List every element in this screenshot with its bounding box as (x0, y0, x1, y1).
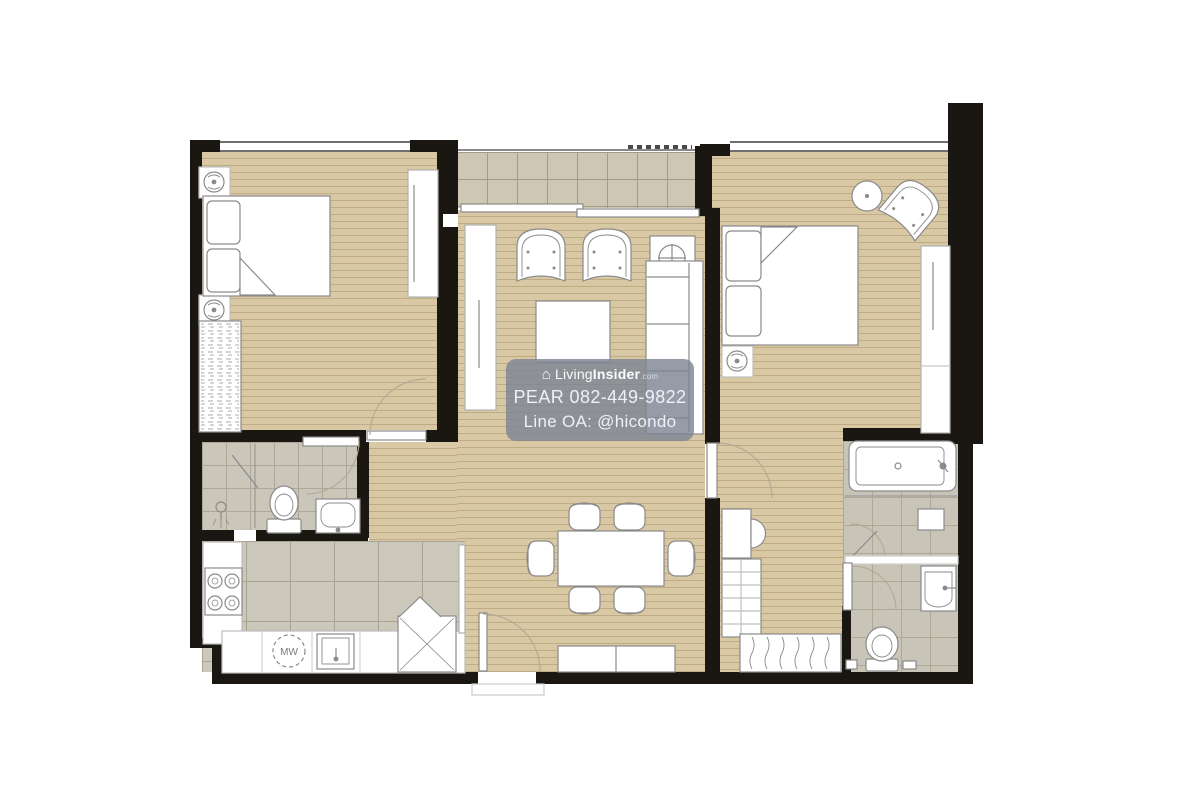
door-master-bedroom (707, 443, 772, 498)
door-entrance (479, 613, 540, 671)
brand-tld: .com (640, 372, 658, 381)
wardrobe (408, 170, 438, 297)
door-bathroom2 (303, 437, 359, 494)
kitchen-sink (317, 634, 354, 669)
console-cabinet (558, 646, 675, 672)
coffee-table (536, 301, 610, 362)
watermark-badge: ⌂LivingInsider.com PEAR 082-449-9822 Lin… (506, 359, 694, 441)
dining-chair (569, 587, 600, 614)
dining-chair (614, 587, 645, 614)
floor-plan: MW (0, 0, 1200, 803)
ceiling-light-icon (199, 167, 230, 198)
dining-chair (614, 503, 645, 530)
armchair (517, 229, 565, 281)
stool (852, 181, 882, 211)
dressing-table (722, 509, 766, 558)
dining-chair (527, 541, 554, 576)
refrigerator (398, 597, 456, 672)
door-master-bathroom (843, 563, 896, 610)
armchair (583, 229, 631, 281)
microwave-label: MW (280, 647, 298, 658)
washbasin (921, 566, 956, 611)
bed-double (203, 196, 330, 296)
kitchen-divider (459, 545, 465, 633)
vanity-edge (845, 556, 958, 564)
dining-chair (569, 503, 600, 530)
brand-suffix: Insider (593, 366, 640, 382)
bathtub (849, 441, 956, 491)
bed-double (722, 226, 858, 345)
stove (205, 568, 242, 615)
wardrobe-hanging (740, 634, 841, 672)
armchair (878, 173, 946, 241)
shower (213, 444, 258, 528)
shower (851, 509, 944, 558)
dining-table (558, 531, 664, 586)
toilet (846, 627, 916, 671)
watermark-line-oa: Line OA: @hicondo (510, 412, 690, 432)
sliding-door (461, 204, 699, 217)
tv-cabinet (465, 225, 496, 410)
door-bedroom2 (367, 379, 426, 440)
watermark-brand: ⌂LivingInsider.com (510, 366, 690, 383)
dining-chair (668, 541, 695, 576)
shelf-unit (199, 321, 241, 432)
brand-prefix: Living (555, 366, 593, 382)
washbasin (316, 499, 360, 533)
chest-of-drawers (722, 559, 761, 637)
watermark-phone: PEAR 082-449-9822 (510, 387, 690, 408)
house-icon: ⌂ (542, 366, 551, 383)
wardrobe (921, 246, 950, 433)
ceiling-light-icon (722, 346, 753, 377)
entrance-step (472, 684, 544, 695)
toilet (267, 486, 301, 533)
